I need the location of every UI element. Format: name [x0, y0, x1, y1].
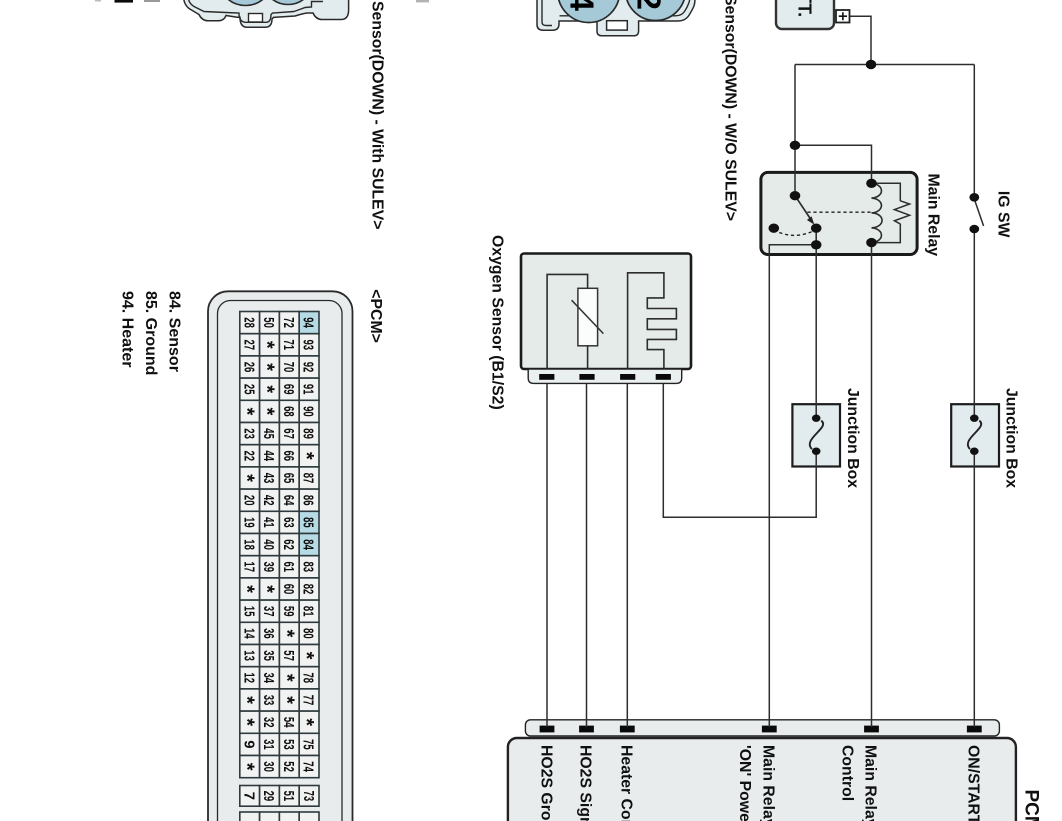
- svg-text:67: 67: [280, 428, 297, 439]
- svg-text:Junction Box: Junction Box: [844, 388, 861, 488]
- svg-text:91: 91: [300, 384, 317, 395]
- svg-text:4: 4: [564, 0, 601, 12]
- svg-text:26: 26: [240, 362, 257, 373]
- svg-text:90: 90: [300, 406, 317, 417]
- svg-text:30: 30: [260, 761, 277, 772]
- svg-text:66: 66: [280, 451, 297, 462]
- svg-text:Sensor(DOWN) - W/O SULEV>: Sensor(DOWN) - W/O SULEV>: [722, 0, 739, 221]
- svg-text:61: 61: [280, 562, 297, 573]
- svg-text:9: 9: [240, 740, 257, 748]
- svg-text:*: *: [236, 696, 258, 704]
- svg-text:*: *: [295, 652, 317, 660]
- svg-text:63: 63: [280, 517, 297, 528]
- svg-text:70: 70: [280, 362, 297, 373]
- svg-text:71: 71: [280, 340, 297, 351]
- svg-text:51: 51: [280, 791, 297, 802]
- svg-text:*: *: [256, 363, 278, 371]
- svg-text:HO2S Signal: HO2S Signal: [577, 745, 594, 821]
- svg-text:81: 81: [300, 606, 317, 617]
- svg-text:42: 42: [260, 495, 277, 506]
- svg-text:54: 54: [280, 717, 297, 728]
- svg-text:89: 89: [300, 428, 317, 439]
- svg-text:44: 44: [260, 451, 277, 462]
- svg-text:62: 62: [280, 539, 297, 550]
- svg-text:94. Heater: 94. Heater: [118, 291, 135, 368]
- svg-text:*: *: [256, 341, 278, 349]
- svg-text:43: 43: [260, 473, 277, 484]
- svg-text:74: 74: [300, 761, 317, 772]
- svg-text:Control: Control: [838, 745, 855, 801]
- svg-text:73: 73: [300, 791, 317, 802]
- svg-text:59: 59: [280, 606, 297, 617]
- svg-text:*: *: [295, 452, 317, 460]
- svg-text:17: 17: [240, 562, 257, 573]
- svg-text:2: 2: [630, 0, 667, 10]
- svg-text:'ON' Power: 'ON' Power: [736, 745, 753, 821]
- svg-text:64: 64: [280, 495, 297, 506]
- svg-text:18: 18: [240, 539, 257, 550]
- svg-text:*: *: [275, 630, 297, 638]
- svg-text:Junction Box: Junction Box: [1002, 388, 1019, 488]
- svg-text:*: *: [275, 696, 297, 704]
- svg-text:84: 84: [300, 539, 317, 550]
- svg-text:35: 35: [260, 650, 277, 661]
- svg-text:92: 92: [300, 362, 317, 373]
- svg-text:12: 12: [240, 673, 257, 684]
- svg-text:78: 78: [300, 673, 317, 684]
- svg-text:84. Sensor: 84. Sensor: [165, 291, 182, 372]
- svg-text:45: 45: [260, 428, 277, 439]
- svg-text:20: 20: [240, 495, 257, 506]
- svg-text:7: 7: [240, 792, 257, 800]
- svg-text:*: *: [236, 718, 258, 726]
- svg-text:29: 29: [260, 791, 277, 802]
- svg-text:PCM: PCM: [1021, 790, 1042, 821]
- svg-text:50: 50: [260, 317, 277, 328]
- svg-text:87: 87: [300, 473, 317, 484]
- svg-text:52: 52: [280, 761, 297, 772]
- svg-text:*: *: [256, 408, 278, 416]
- svg-text:<PCM>: <PCM>: [367, 289, 384, 343]
- svg-text:*: *: [256, 385, 278, 393]
- svg-text:86: 86: [300, 495, 317, 506]
- svg-text:68: 68: [280, 406, 297, 417]
- svg-text:37: 37: [260, 606, 277, 617]
- svg-text:39: 39: [260, 562, 277, 573]
- svg-text:53: 53: [280, 739, 297, 750]
- svg-text:33: 33: [260, 695, 277, 706]
- svg-text:*: *: [295, 718, 317, 726]
- svg-text:*: *: [236, 408, 258, 416]
- svg-text:75: 75: [300, 739, 317, 750]
- svg-text:65: 65: [280, 473, 297, 484]
- svg-text:32: 32: [260, 717, 277, 728]
- svg-text:Main Relay: Main Relay: [925, 174, 942, 257]
- svg-text:19: 19: [240, 517, 257, 528]
- svg-text:Oxygen Sensor (B1/S2): Oxygen Sensor (B1/S2): [489, 235, 506, 410]
- svg-text:*: *: [236, 763, 258, 771]
- svg-text:22: 22: [240, 451, 257, 462]
- svg-text:23: 23: [240, 428, 257, 439]
- svg-text:*: *: [256, 585, 278, 593]
- svg-text:34: 34: [260, 673, 277, 684]
- svg-text:25: 25: [240, 384, 257, 395]
- svg-text:14: 14: [240, 628, 257, 639]
- svg-text:*: *: [236, 585, 258, 593]
- svg-text:57: 57: [280, 650, 297, 661]
- svg-text:28: 28: [240, 317, 257, 328]
- svg-text:BATT.: BATT.: [795, 0, 815, 17]
- svg-text:*: *: [236, 474, 258, 482]
- svg-text:94: 94: [300, 317, 317, 328]
- svg-text:41: 41: [260, 517, 277, 528]
- svg-text:13: 13: [240, 650, 257, 661]
- svg-text:83: 83: [300, 562, 317, 573]
- svg-text:69: 69: [280, 384, 297, 395]
- svg-text:93: 93: [300, 339, 317, 350]
- svg-text:72: 72: [280, 317, 297, 328]
- svg-text:Main Relay: Main Relay: [862, 745, 879, 821]
- svg-text:77: 77: [300, 695, 317, 706]
- svg-text:31: 31: [260, 739, 277, 750]
- svg-text:85. Ground: 85. Ground: [142, 291, 159, 375]
- svg-text:80: 80: [300, 628, 317, 639]
- svg-text:Sensor(DOWN) - With SULEV>: Sensor(DOWN) - With SULEV>: [368, 1, 385, 229]
- svg-text:82: 82: [300, 584, 317, 595]
- svg-text:HO2S Ground: HO2S Ground: [538, 745, 555, 821]
- svg-text:ON/START Power: ON/START Power: [965, 745, 982, 821]
- svg-text:IG SW: IG SW: [994, 191, 1011, 238]
- svg-text:Main Relay: Main Relay: [760, 745, 777, 821]
- svg-text:15: 15: [240, 606, 257, 617]
- svg-text:60: 60: [280, 584, 297, 595]
- svg-text:36: 36: [260, 628, 277, 639]
- svg-text:*: *: [275, 674, 297, 682]
- svg-text:Heater Control: Heater Control: [618, 745, 635, 821]
- svg-text:27: 27: [240, 340, 257, 351]
- svg-text:85: 85: [300, 517, 317, 528]
- svg-text:40: 40: [260, 539, 277, 550]
